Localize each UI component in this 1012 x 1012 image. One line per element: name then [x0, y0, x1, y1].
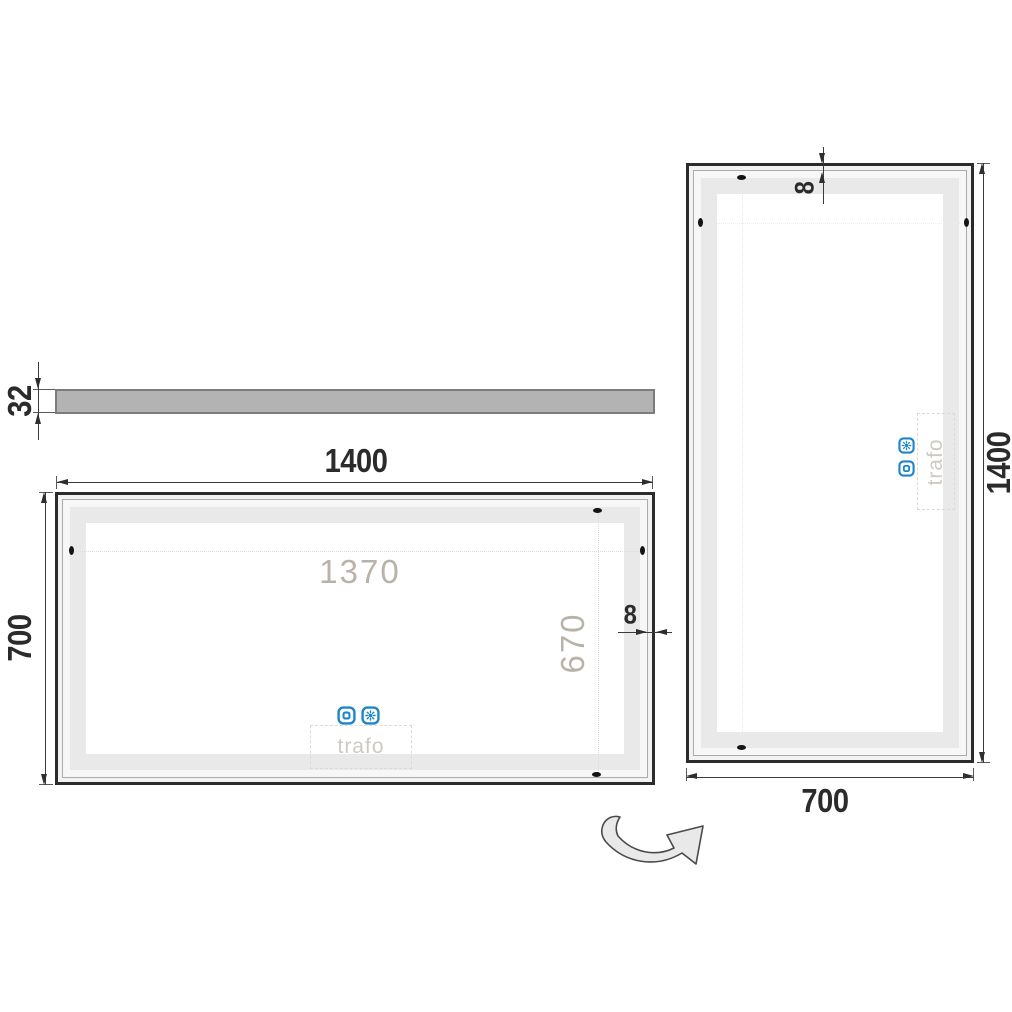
dim-arrow	[963, 773, 974, 779]
touch-switch-icon	[337, 706, 356, 725]
rotated-width-label: 700	[801, 782, 848, 820]
front-touch-controls	[337, 706, 380, 725]
rotated-trafo-label: trafo	[924, 438, 948, 485]
mounting-dot	[698, 218, 703, 227]
mounting-axis-horizontal	[706, 223, 964, 224]
dim-arrow	[819, 153, 825, 164]
dim-line-front-width	[57, 482, 653, 483]
dim-arrow	[41, 492, 47, 503]
technical-drawing-canvas: 32 1370 670 trafo	[0, 0, 1012, 1012]
rotated-touch-controls	[898, 437, 915, 477]
brightness-icon	[361, 706, 380, 725]
dim-arrow	[979, 163, 985, 174]
rotated-frame-label: 8	[790, 182, 821, 195]
mounting-axis-vertical	[598, 513, 599, 773]
mounting-dot	[737, 745, 746, 750]
mounting-dot	[69, 546, 74, 555]
mounting-axis-vertical	[742, 181, 743, 746]
mounting-dot	[592, 772, 601, 777]
brightness-icon	[898, 437, 915, 454]
mounting-axis-horizontal	[76, 551, 641, 552]
dim-line-rotated-width	[686, 777, 974, 778]
dim-arrow	[41, 774, 47, 785]
dim-arrow	[686, 773, 697, 779]
dim-arrow	[656, 629, 667, 635]
front-frame-label: 8	[624, 600, 637, 631]
front-led-width-label: 1370	[319, 553, 400, 591]
dim-arrow	[57, 479, 68, 485]
front-trafo-label: trafo	[337, 735, 384, 759]
side-view-bar	[55, 389, 655, 414]
side-thickness-label: 32	[1, 385, 39, 416]
rotate-arrow-icon	[593, 813, 715, 871]
mounting-dot	[640, 546, 645, 555]
dim-line-front-height	[45, 492, 46, 785]
dim-arrow	[636, 629, 647, 635]
mounting-dot	[593, 508, 602, 513]
mounting-dot	[964, 218, 969, 227]
touch-switch-icon	[898, 460, 915, 477]
mounting-dot	[737, 175, 746, 180]
front-led-height-label: 670	[554, 612, 592, 673]
dim-arrow	[979, 752, 985, 763]
front-height-label: 700	[1, 614, 39, 661]
dim-arrow	[642, 479, 653, 485]
front-width-label: 1400	[325, 442, 388, 480]
rotated-height-label: 1400	[980, 432, 1012, 495]
